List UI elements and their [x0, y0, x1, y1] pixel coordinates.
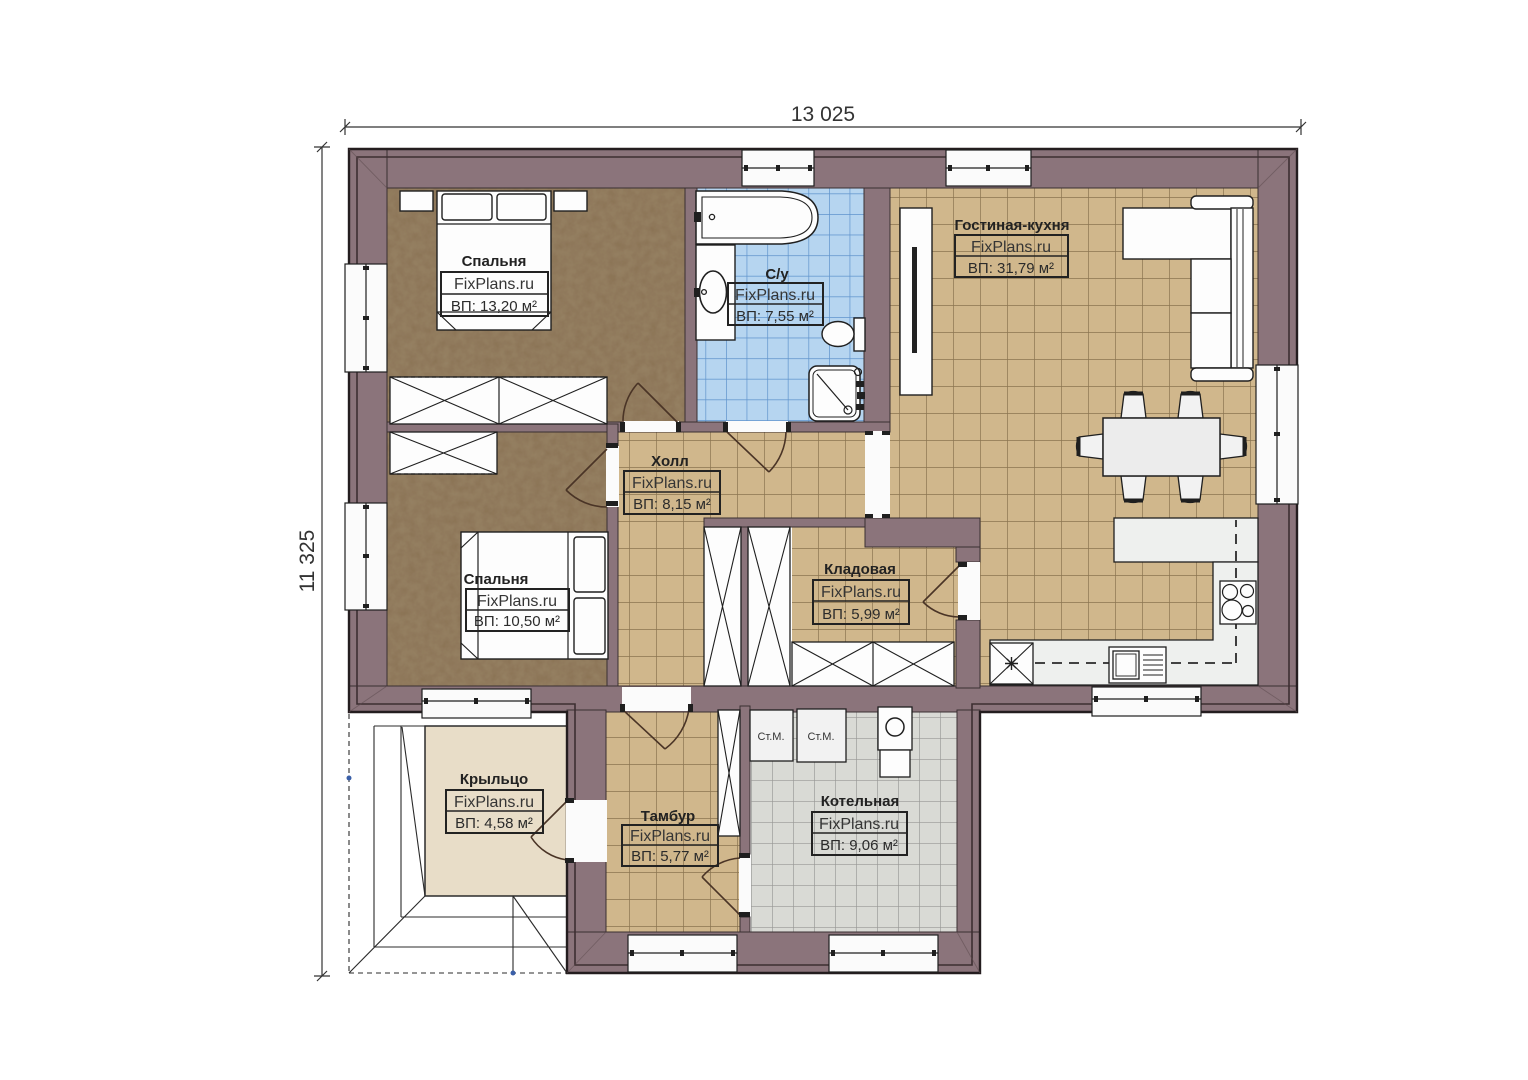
svg-text:FixPlans.ru: FixPlans.ru [821, 584, 901, 601]
svg-text:FixPlans.ru: FixPlans.ru [971, 239, 1051, 256]
svg-text:Гостиная-кухня: Гостиная-кухня [955, 217, 1070, 234]
svg-text:ВП: 13,20 м²: ВП: 13,20 м² [451, 298, 537, 315]
svg-text:Ст.М.: Ст.М. [757, 731, 784, 743]
svg-text:FixPlans.ru: FixPlans.ru [630, 828, 710, 845]
svg-text:Крыльцо: Крыльцо [460, 771, 528, 788]
svg-text:ВП: 10,50 м²: ВП: 10,50 м² [474, 613, 560, 630]
svg-text:ВП: 31,79 м²: ВП: 31,79 м² [968, 260, 1054, 277]
svg-text:Кладовая: Кладовая [824, 561, 896, 578]
svg-text:FixPlans.ru: FixPlans.ru [819, 816, 899, 833]
svg-text:Ст.М.: Ст.М. [807, 731, 834, 743]
svg-text:Спальня: Спальня [464, 571, 529, 588]
svg-text:Холл: Холл [651, 453, 689, 470]
svg-text:FixPlans.ru: FixPlans.ru [454, 794, 534, 811]
svg-text:FixPlans.ru: FixPlans.ru [477, 593, 557, 610]
svg-text:Котельная: Котельная [821, 793, 900, 810]
svg-text:ВП: 9,06 м²: ВП: 9,06 м² [820, 837, 898, 854]
svg-text:13 025: 13 025 [791, 103, 855, 126]
svg-text:ВП: 5,77 м²: ВП: 5,77 м² [631, 848, 709, 865]
svg-text:ВП: 5,99 м²: ВП: 5,99 м² [822, 606, 900, 623]
svg-text:11 325: 11 325 [296, 530, 319, 593]
svg-text:ВП: 4,58 м²: ВП: 4,58 м² [455, 815, 533, 832]
svg-text:FixPlans.ru: FixPlans.ru [454, 276, 534, 293]
svg-text:ВП: 8,15 м²: ВП: 8,15 м² [633, 496, 711, 513]
svg-text:FixPlans.ru: FixPlans.ru [735, 287, 815, 304]
svg-text:FixPlans.ru: FixPlans.ru [632, 475, 712, 492]
svg-text:С/у: С/у [765, 266, 789, 283]
svg-text:Тамбур: Тамбур [641, 808, 695, 825]
svg-text:Спальня: Спальня [462, 253, 527, 270]
svg-text:ВП: 7,55 м²: ВП: 7,55 м² [736, 308, 814, 325]
